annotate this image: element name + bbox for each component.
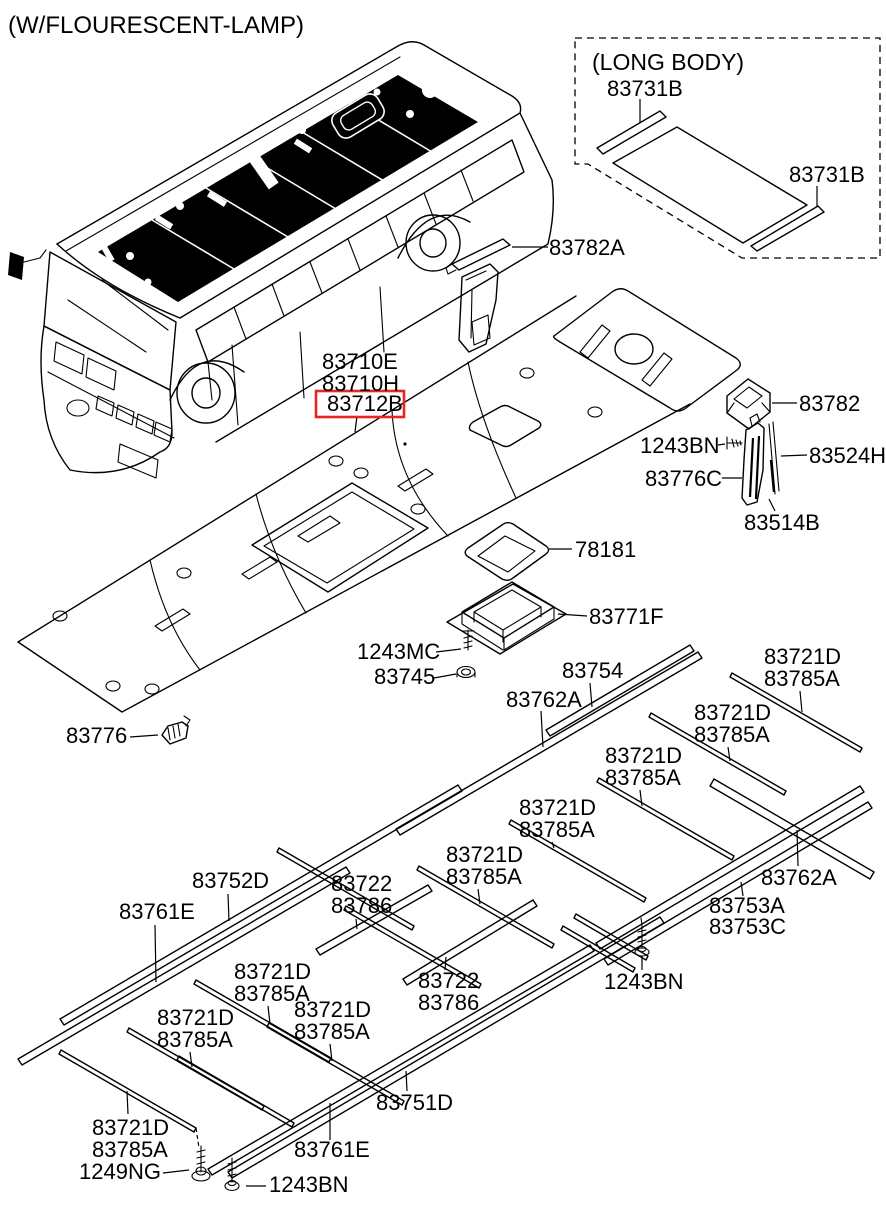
label-1243bn-2: 1243BN	[604, 969, 684, 994]
label-83785a-8: 83785A	[157, 1027, 233, 1052]
label-83524h: 83524H	[809, 443, 886, 468]
label-83785a-1: 83785A	[764, 666, 840, 691]
label-78181: 78181	[575, 537, 636, 562]
strip-extra-2	[574, 914, 648, 960]
screw-1249NG	[192, 1146, 210, 1181]
side-mirror	[8, 252, 24, 280]
label-83785a-3: 83785A	[605, 765, 681, 790]
label-83761e-1: 83761E	[119, 899, 195, 924]
small-parts	[162, 239, 779, 1191]
long-body-panel	[613, 127, 807, 243]
label-83782a: 83782A	[549, 235, 625, 260]
headlight-left	[54, 342, 84, 374]
screw-1243MC	[462, 630, 474, 650]
hatch-cutout	[469, 406, 540, 447]
label-83753c: 83753C	[709, 914, 786, 939]
long-body-strip-bottom	[751, 206, 824, 251]
label-83712b: 83712B	[327, 391, 403, 416]
label-83785a-5: 83785A	[446, 864, 522, 889]
headlight-right	[86, 358, 116, 390]
part-83782	[727, 379, 770, 429]
strip-edge-right	[710, 779, 874, 879]
nut-83745	[457, 667, 475, 678]
strip-83721D-3	[597, 778, 734, 860]
part-83782A	[452, 239, 510, 270]
part-83776	[162, 716, 190, 744]
screw-1243BN-top	[727, 437, 742, 449]
rear-wheel	[398, 215, 470, 271]
part-83776C	[742, 423, 764, 505]
label-83762a-1: 83762A	[506, 687, 582, 712]
bus-illustration	[8, 42, 553, 478]
label-83762a-2: 83762A	[761, 865, 837, 890]
label-83786-2: 83786	[418, 990, 479, 1015]
label-83785a-2: 83785A	[694, 722, 770, 747]
label-1249ng: 1249NG	[79, 1159, 161, 1184]
label-83776c: 83776C	[645, 466, 722, 491]
label-83785a-7: 83785A	[294, 1019, 370, 1044]
label-83761e-2: 83761E	[294, 1137, 370, 1162]
label-83731b-1: 83731B	[607, 76, 683, 101]
label-83751d: 83751D	[376, 1090, 453, 1115]
part-78181	[465, 523, 548, 581]
label-83752d: 83752D	[192, 868, 269, 893]
label-83782: 83782	[799, 391, 860, 416]
long-body-strip-top	[597, 111, 666, 154]
license-plate	[118, 444, 158, 478]
label-83731b-2: 83731B	[789, 162, 865, 187]
assembly-dash-line	[196, 1128, 199, 1148]
labels: (W/FLOURESCENT-LAMP) (LONG BODY) 83731B …	[8, 12, 886, 1197]
front-wheel	[170, 361, 244, 423]
strip-extra-3	[561, 926, 635, 972]
part-83514B	[771, 460, 774, 492]
label-83754: 83754	[562, 658, 623, 683]
note-flourescent-lamp: (W/FLOURESCENT-LAMP)	[8, 12, 304, 39]
label-83745: 83745	[374, 664, 435, 689]
label-83776: 83776	[66, 723, 127, 748]
label-1243bn-3: 1243BN	[269, 1172, 349, 1197]
label-83786-1: 83786	[331, 893, 392, 918]
label-83785a-4: 83785A	[519, 817, 595, 842]
label-1243bn-1: 1243BN	[640, 433, 720, 458]
label-83771f: 83771F	[589, 604, 664, 629]
label-83514b: 83514B	[744, 510, 820, 535]
parts-diagram: (W/FLOURESCENT-LAMP) (LONG BODY) 83731B …	[0, 0, 886, 1211]
label-1243mc: 1243MC	[357, 639, 440, 664]
caption-long-body: (LONG BODY)	[592, 49, 744, 75]
